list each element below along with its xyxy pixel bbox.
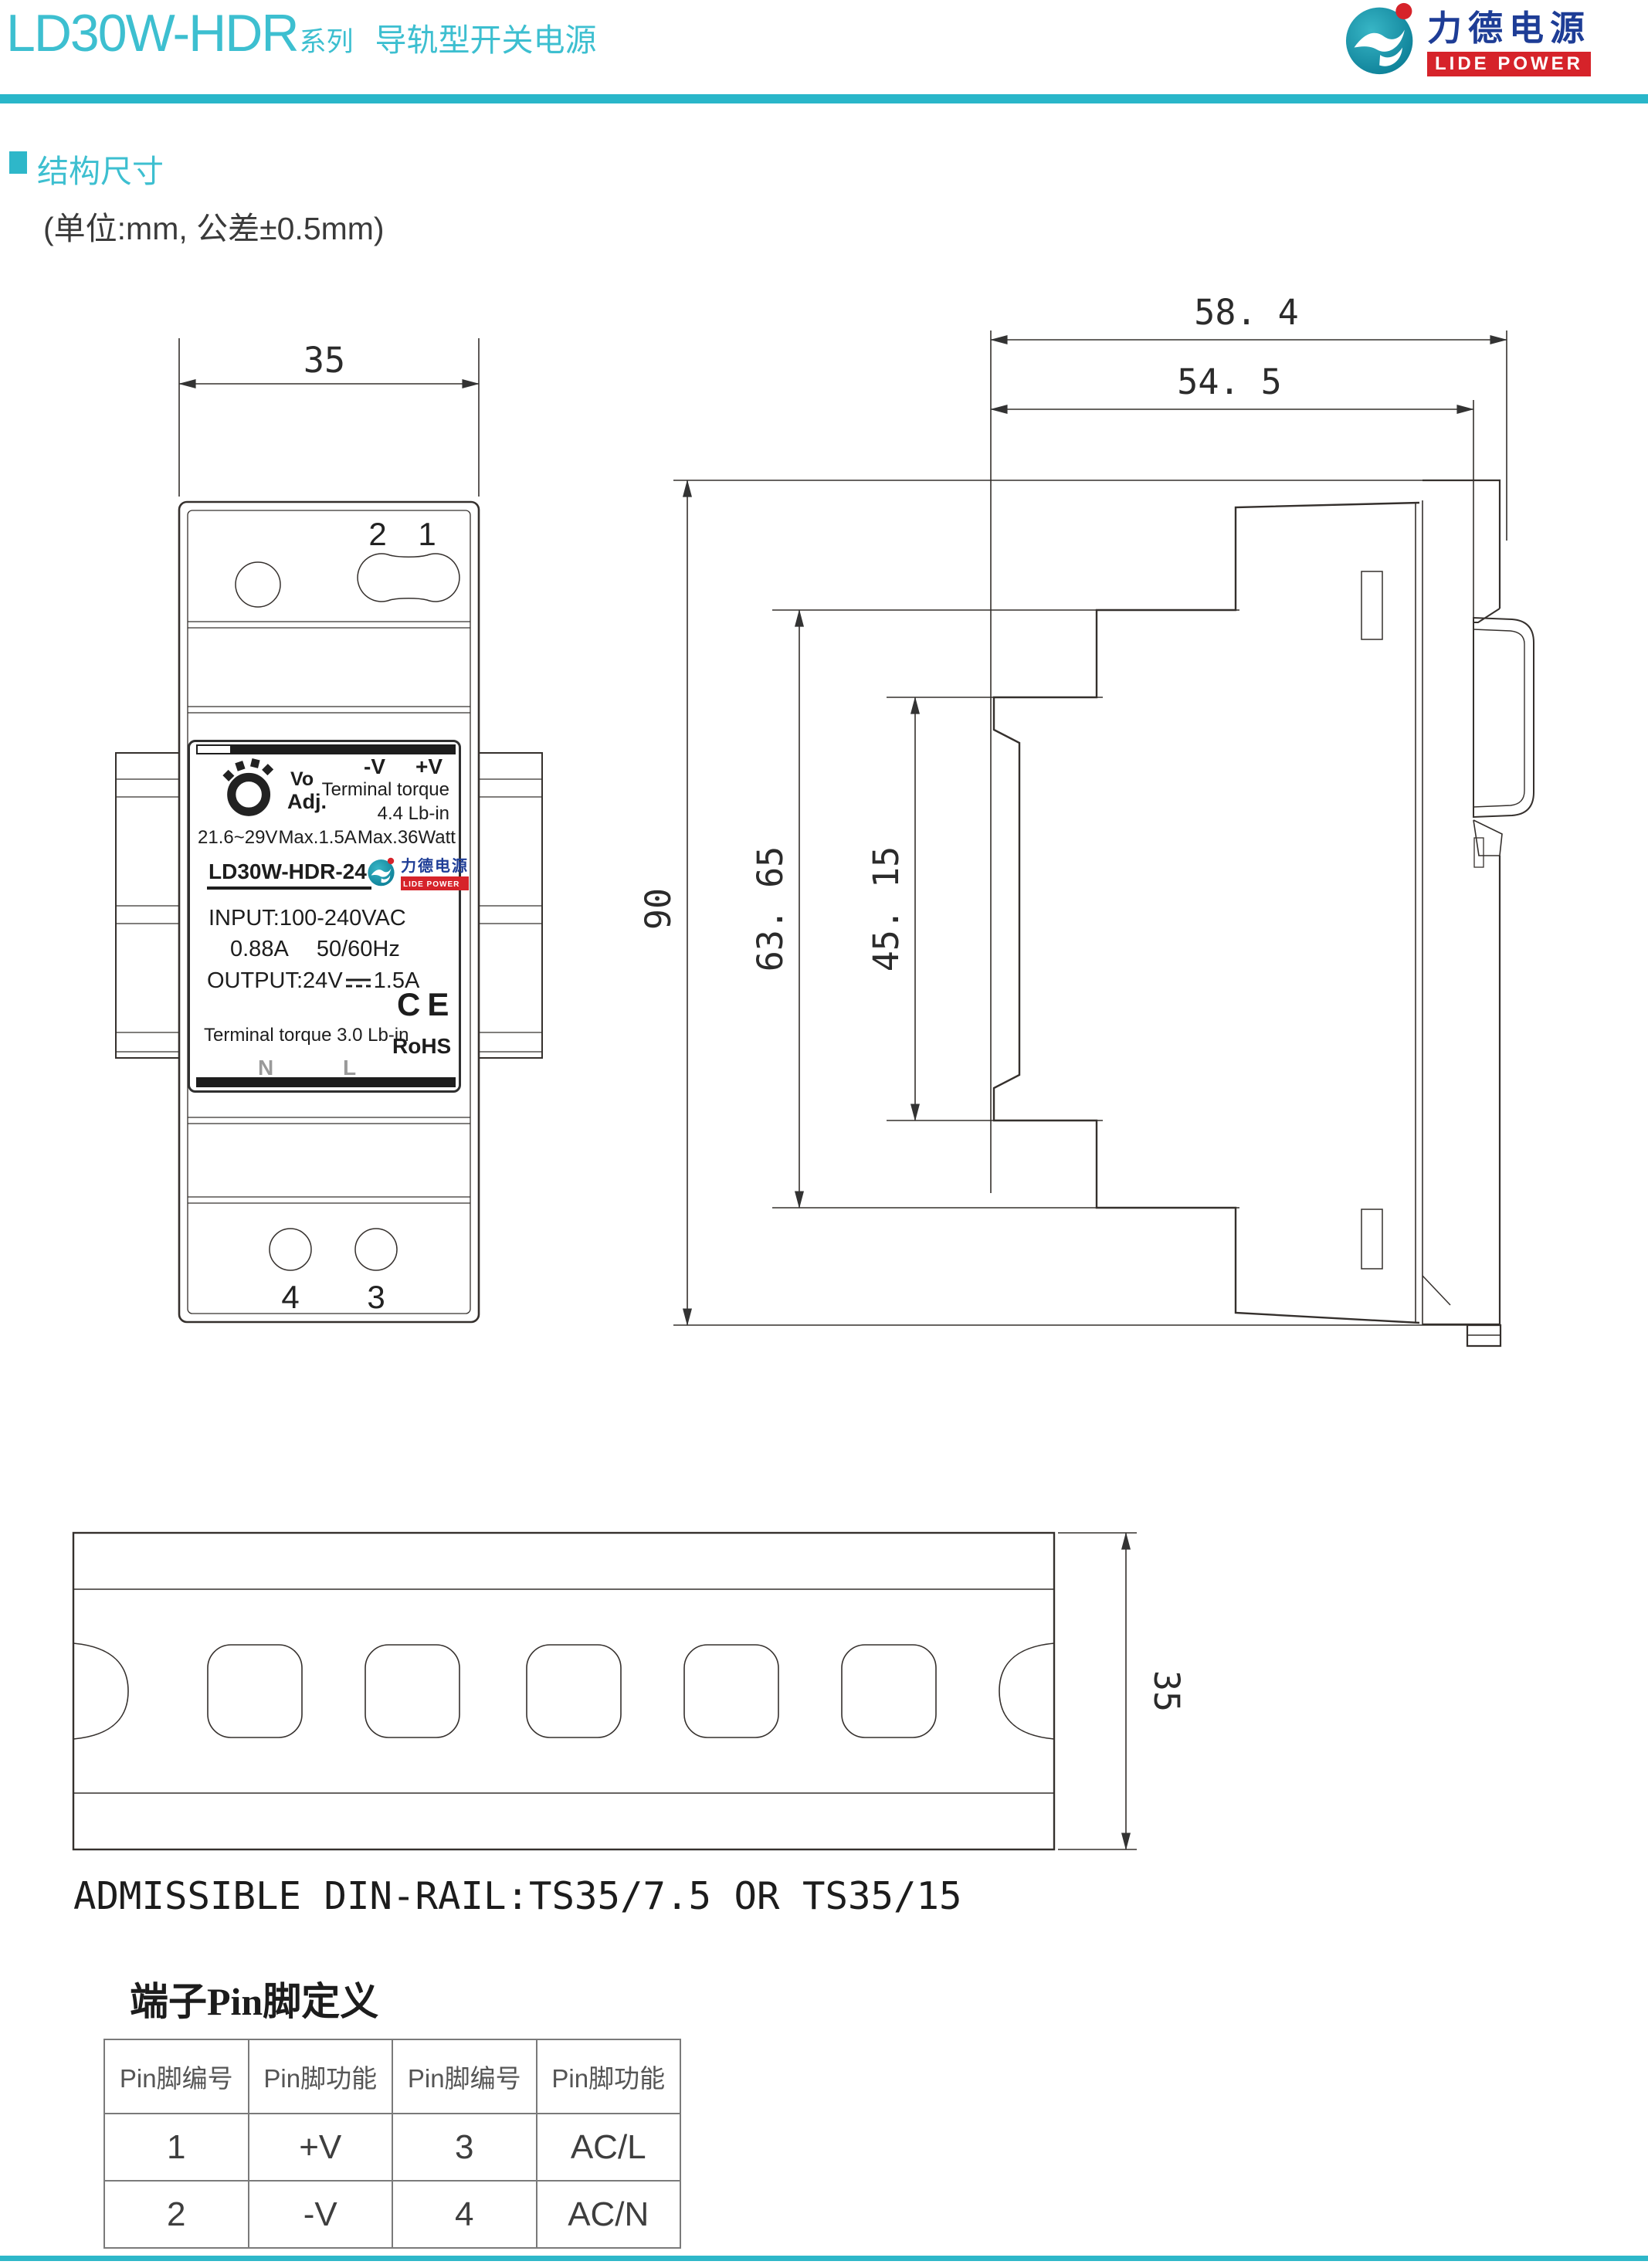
label-terminal-torque-value: 4.4 Lb-in [306, 803, 449, 825]
pin-4-label: 4 [281, 1279, 299, 1315]
side-rear-slab [1423, 480, 1500, 1324]
label-brand-en-box: LIDE POWER [401, 876, 469, 890]
side-dim-outer-step-text: 63. 65 [750, 846, 791, 972]
datasheet-page: LD30W-HDR 系列 导轨型开关电源 力德电源 LIDE POWER 结构尺… [0, 0, 1648, 2268]
rail-dim-height [1058, 1533, 1137, 1849]
pin-table-title: 端子Pin脚定义 [130, 1971, 378, 2026]
pin-number-cell: 2 [104, 2181, 249, 2248]
pin-table-header: Pin脚编号 [104, 2039, 249, 2114]
dc-symbol-icon [344, 976, 372, 990]
side-body-profile [994, 503, 1419, 1323]
footer-accent-line [0, 2256, 1648, 2261]
side-dim-height [673, 480, 1467, 1325]
label-brand-logo: 力德电源 LIDE POWER [368, 853, 469, 890]
side-dim-height-text: 90 [638, 888, 679, 930]
label-input-detail: 0.88A 50/60Hz [230, 937, 422, 962]
label-brand-logo-icon [368, 857, 397, 887]
pin-table-header: Pin脚功能 [537, 2039, 681, 2114]
rail-dim-height-text: 35 [1146, 1670, 1187, 1712]
label-brand-cn: 力德电源 [401, 853, 469, 876]
front-dim-width-text: 35 [303, 340, 345, 381]
side-dim-body-depth-text: 54. 5 [1177, 361, 1281, 402]
label-rating-current: Max.1.5A [278, 827, 356, 849]
side-dim-total-depth [991, 331, 1507, 1193]
label-rating-power: Max.36Watt [358, 827, 456, 849]
pin-table-row: 2 -V 4 AC/N [104, 2181, 680, 2248]
label-input-line: INPUT:100-240VAC [209, 906, 406, 931]
label-rating-voltage: 21.6~29V [198, 827, 277, 849]
label-terminal-torque: Terminal torque [306, 779, 449, 801]
label-terminal-torque-bottom: Terminal torque 3.0 Lb-in [204, 1025, 409, 1046]
rail-caption: ADMISSIBLE DIN-RAIL:TS35/7.5 OR TS35/15 [73, 1874, 962, 1918]
label-output-voltage: OUTPUT:24V [207, 968, 343, 994]
rail-outline [73, 1533, 1054, 1849]
din-rail-view: 35 ADMISSIBLE DIN-RAIL:TS35/7.5 OR TS35/… [73, 1533, 1187, 1918]
pin-table-header: Pin脚编号 [392, 2039, 537, 2114]
side-dim-inner-step [887, 697, 1103, 1120]
label-ratings-row: 21.6~29V Max.1.5A Max.36Watt [198, 827, 456, 849]
ce-mark-icon: CE [397, 986, 456, 1023]
label-top-bar [196, 744, 456, 754]
side-view: 58. 4 54. 5 90 63. 65 [638, 292, 1534, 1346]
label-brand-text: 力德电源 LIDE POWER [401, 853, 469, 890]
pin-1-label: 1 [418, 516, 436, 552]
label-model-number: LD30W-HDR-24 [207, 859, 371, 890]
din-clip-wing-right [479, 753, 542, 1058]
pin-number-cell: 1 [104, 2114, 249, 2181]
label-minus-v: -V [364, 754, 385, 779]
pin-function-cell: -V [249, 2181, 393, 2248]
vent-slot-top [1361, 571, 1382, 639]
din-rail-clip-profile [1423, 609, 1534, 1346]
side-dim-body-depth [991, 400, 1473, 618]
label-input-current: 0.88A [230, 937, 289, 961]
pin-definition-table: Pin脚编号 Pin脚功能 Pin脚编号 Pin脚功能 1 +V 3 AC/L … [103, 2039, 681, 2249]
pin-number-cell: 3 [392, 2114, 537, 2181]
pin-function-cell: +V [249, 2114, 393, 2181]
rail-slots [73, 1643, 1054, 1739]
pin-2-label: 2 [368, 516, 386, 552]
pin-table-row: 1 +V 3 AC/L [104, 2114, 680, 2181]
pin-table-header: Pin脚功能 [249, 2039, 393, 2114]
vo-adjust-knob-icon [221, 756, 287, 822]
side-dim-total-depth-text: 58. 4 [1194, 292, 1298, 333]
dimension-drawing: 35 [0, 0, 1648, 2268]
label-output-line: OUTPUT:24V 1.5A [207, 968, 419, 994]
pin-function-cell: AC/L [537, 2114, 681, 2181]
pin-table-header-row: Pin脚编号 Pin脚功能 Pin脚编号 Pin脚功能 [104, 2039, 680, 2114]
label-top-bar-notch [196, 744, 232, 754]
side-dim-outer-step [772, 610, 1239, 1208]
label-input-frequency: 50/60Hz [317, 937, 400, 961]
pin-3-label: 3 [367, 1279, 385, 1315]
vent-slot-bottom [1361, 1209, 1382, 1269]
rohs-mark: RoHS [392, 1034, 451, 1059]
label-plus-v: +V [415, 754, 443, 779]
din-clip-wing-left [116, 753, 179, 1058]
label-brand-en: LIDE POWER [403, 880, 459, 889]
label-bottom-bar [196, 1077, 456, 1087]
side-dim-inner-step-text: 45. 15 [866, 846, 907, 972]
pin-function-cell: AC/N [537, 2181, 681, 2248]
product-label: Vo Adj. -V +V Terminal torque 4.4 Lb-in … [188, 740, 461, 1093]
pin-number-cell: 4 [392, 2181, 537, 2248]
